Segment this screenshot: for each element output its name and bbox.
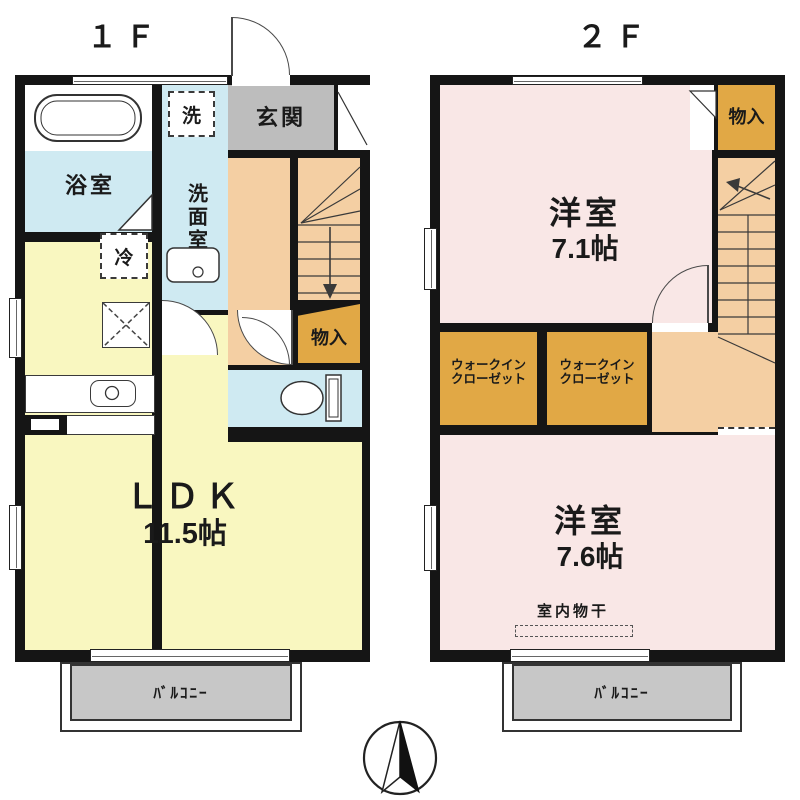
shoe-cabinet bbox=[338, 85, 370, 150]
toilet-room bbox=[228, 370, 362, 427]
wic-2-label: ウォークイン クローゼット bbox=[547, 358, 647, 387]
wic-2-line2: クローゼット bbox=[559, 372, 634, 386]
indoor-drying-label: 室内物干 bbox=[503, 603, 643, 620]
balcony-2f: ﾊﾞﾙｺﾆｰ bbox=[502, 662, 742, 732]
floor-2-title: ２Ｆ bbox=[560, 12, 670, 56]
balcony-1f: ﾊﾞﾙｺﾆｰ bbox=[60, 662, 302, 732]
entrance-door-arc bbox=[232, 17, 290, 75]
bathtub-area bbox=[25, 85, 152, 151]
entrance-door-leaf bbox=[231, 17, 233, 76]
refrigerator-box: 冷 bbox=[100, 233, 148, 279]
balcony-1f-label: ﾊﾞﾙｺﾆｰ bbox=[153, 682, 208, 703]
window-1f-left-upper bbox=[9, 298, 22, 358]
window-2f-left-upper bbox=[424, 228, 437, 290]
bathroom-label: 浴室 bbox=[45, 173, 135, 198]
balcony-2f-floor: ﾊﾞﾙｺﾆｰ bbox=[512, 664, 732, 721]
storage-1f-label: 物入 bbox=[298, 313, 360, 363]
dashed-wall-opening bbox=[718, 427, 775, 435]
entrance-doorway-gap bbox=[232, 75, 290, 86]
window-2f-left-lower bbox=[424, 505, 437, 571]
staircase-2f bbox=[718, 158, 775, 370]
bedroom-1-label: 洋室 bbox=[485, 195, 685, 232]
entrance-label: 玄関 bbox=[228, 85, 334, 150]
bedroom1-door-leaf bbox=[707, 265, 709, 323]
bedroom-2-size: 7.6帖 bbox=[490, 541, 690, 573]
north-compass-icon bbox=[356, 714, 444, 800]
ldk-size-label: 11.5帖 bbox=[85, 518, 285, 551]
floor-2-plan: 洋室 7.1帖 物入 ウォークイン クローゼット ウォークイン クローゼット 洋… bbox=[430, 75, 785, 662]
window-2f-balcony-door bbox=[510, 649, 650, 662]
wic-1-line1: ウォークイン bbox=[451, 358, 526, 372]
wic-2-line1: ウォークイン bbox=[559, 358, 634, 372]
washing-machine-label: 洗 bbox=[182, 101, 201, 128]
kitchen-stove-inner bbox=[31, 419, 59, 430]
kitchen-sink bbox=[90, 380, 136, 407]
refrigerator-label: 冷 bbox=[114, 243, 133, 270]
window-1f-top bbox=[72, 76, 228, 85]
wic-1-label: ウォークイン クローゼット bbox=[440, 358, 537, 387]
wic-1-line2: クローゼット bbox=[451, 372, 526, 386]
bedroom-2-label: 洋室 bbox=[490, 503, 690, 540]
closet-door-gap bbox=[690, 85, 714, 150]
floor-1-title: １Ｆ bbox=[70, 12, 180, 56]
staircase bbox=[298, 158, 360, 300]
kitchen-counter-lower bbox=[65, 415, 155, 435]
bedroom-1 bbox=[440, 85, 690, 155]
balcony-2f-label: ﾊﾞﾙｺﾆｰ bbox=[594, 682, 649, 703]
window-2f-top bbox=[512, 76, 643, 85]
window-1f-left-lower bbox=[9, 505, 22, 570]
ldk-label: ＬＤＫ bbox=[85, 478, 285, 517]
drying-pole-mark bbox=[515, 625, 633, 637]
washing-machine-box: 洗 bbox=[168, 91, 215, 137]
balcony-1f-floor: ﾊﾞﾙｺﾆｰ bbox=[70, 664, 292, 721]
washroom-label: 洗面室 bbox=[162, 150, 228, 285]
bedroom-1-size: 7.1帖 bbox=[485, 233, 685, 265]
floor-1-plan: 洗 冷 浴室 洗面室 玄関 物入 ＬＤＫ 11.5帖 bbox=[15, 75, 370, 662]
floor-plan: １Ｆ ２Ｆ 洗 冷 浴室 洗面室 bbox=[0, 0, 800, 800]
cabinet-box bbox=[102, 302, 150, 348]
hall-door-leaf bbox=[291, 310, 293, 365]
storage-2f-label: 物入 bbox=[718, 85, 775, 150]
window-1f-balcony-door bbox=[90, 649, 290, 662]
bedroom1-doorway-gap bbox=[652, 323, 708, 332]
